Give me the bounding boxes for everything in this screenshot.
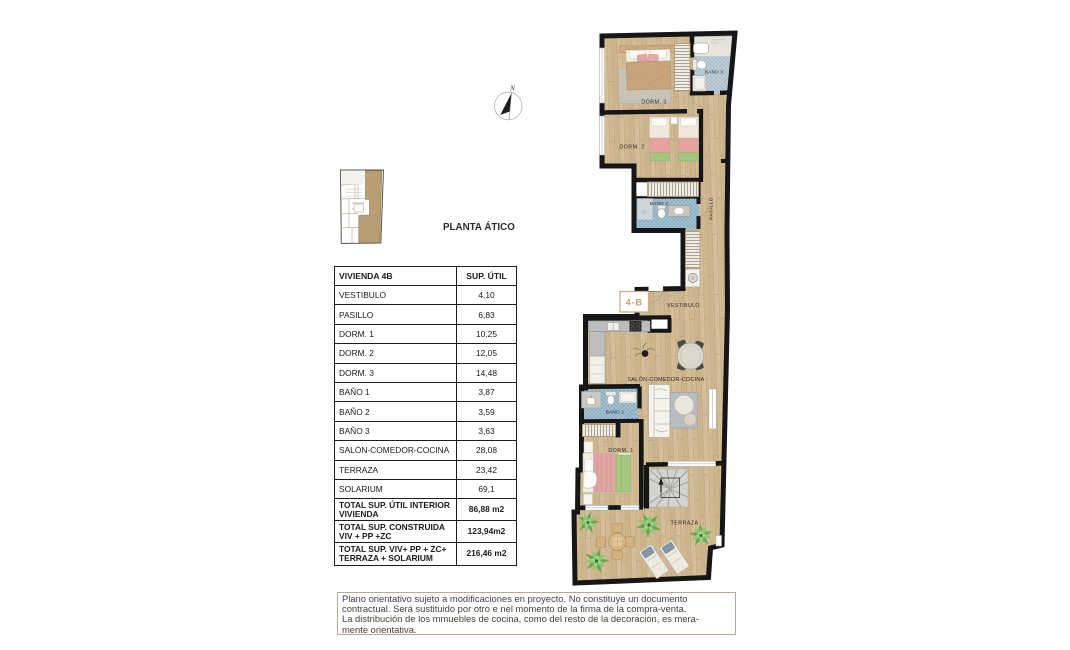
svg-text:BAÑO 3: BAÑO 3 [705, 69, 724, 75]
svg-text:4-B: 4-B [626, 298, 643, 308]
svg-text:N: N [509, 85, 515, 93]
svg-text:TERRAZA: TERRAZA [671, 521, 699, 527]
svg-text:VESTIBULO: VESTIBULO [667, 303, 700, 309]
svg-text:BAÑO 2: BAÑO 2 [650, 200, 669, 206]
svg-text:SALÓN-COMEDOR-COCINA: SALÓN-COMEDOR-COCINA [628, 376, 705, 383]
svg-text:PASILLO: PASILLO [709, 197, 714, 220]
svg-text:DORM. 3: DORM. 3 [641, 100, 666, 106]
svg-text:DORM. 2: DORM. 2 [619, 145, 644, 151]
svg-text:BAÑO 1: BAÑO 1 [606, 409, 625, 416]
